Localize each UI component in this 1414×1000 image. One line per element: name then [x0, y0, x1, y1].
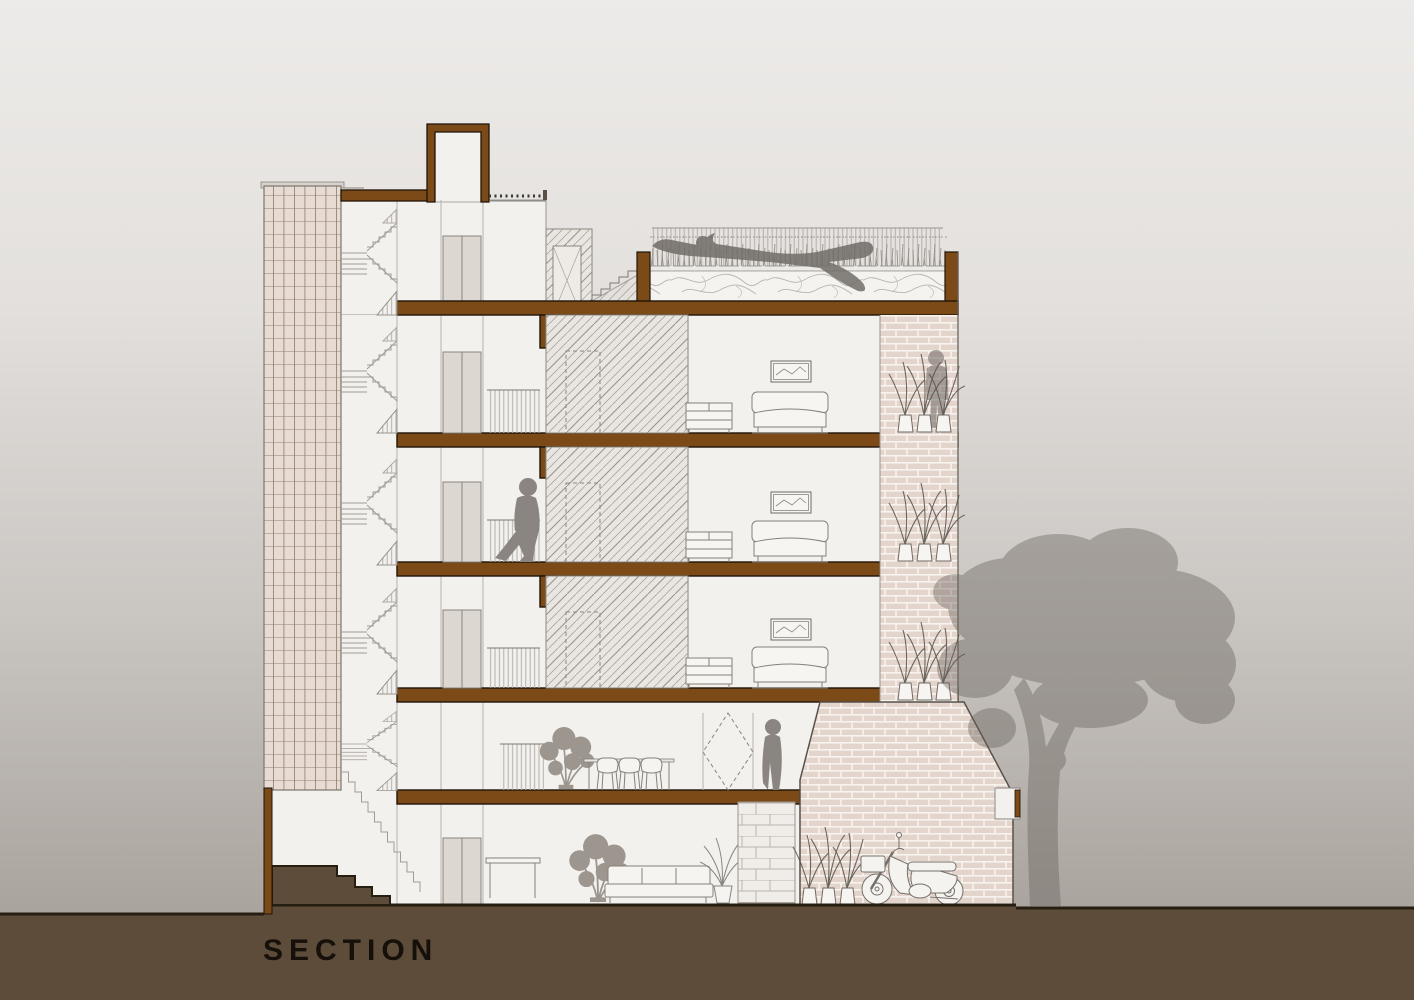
- bed-icon: [752, 521, 828, 562]
- parapet-post: [543, 190, 547, 200]
- sofa-icon: [605, 866, 713, 903]
- pool-water: [650, 271, 945, 301]
- floor-slab: [397, 562, 880, 576]
- bed-icon: [752, 647, 828, 688]
- cabinet-icon: [686, 532, 732, 562]
- bed-icon: [752, 392, 828, 433]
- pool-deck-pavers: [650, 266, 945, 271]
- ground-fill: [0, 905, 1414, 1000]
- lightwell-glass-walls: [546, 315, 688, 688]
- cabinet-icon: [686, 658, 732, 688]
- desk-icon: [486, 858, 540, 863]
- cabinet-icon: [686, 403, 732, 433]
- retaining-wall: [264, 788, 272, 914]
- dining-stair-railing: [500, 744, 544, 790]
- stone-wall: [738, 802, 795, 903]
- picture-frame-icon: [771, 492, 811, 513]
- roof-slab: [341, 190, 433, 201]
- picture-frame-icon: [771, 361, 811, 382]
- floor-slab: [397, 301, 958, 315]
- picture-frame-icon: [771, 619, 811, 640]
- section-drawing: [0, 0, 1414, 1000]
- gable-post: [1015, 790, 1020, 817]
- elevator-overrun-interior: [435, 132, 481, 202]
- section-label: SECTION: [263, 934, 438, 968]
- floor-slab: [397, 688, 958, 702]
- section-drawing-page: SECTION: [0, 0, 1414, 1000]
- floor-slab: [397, 433, 958, 447]
